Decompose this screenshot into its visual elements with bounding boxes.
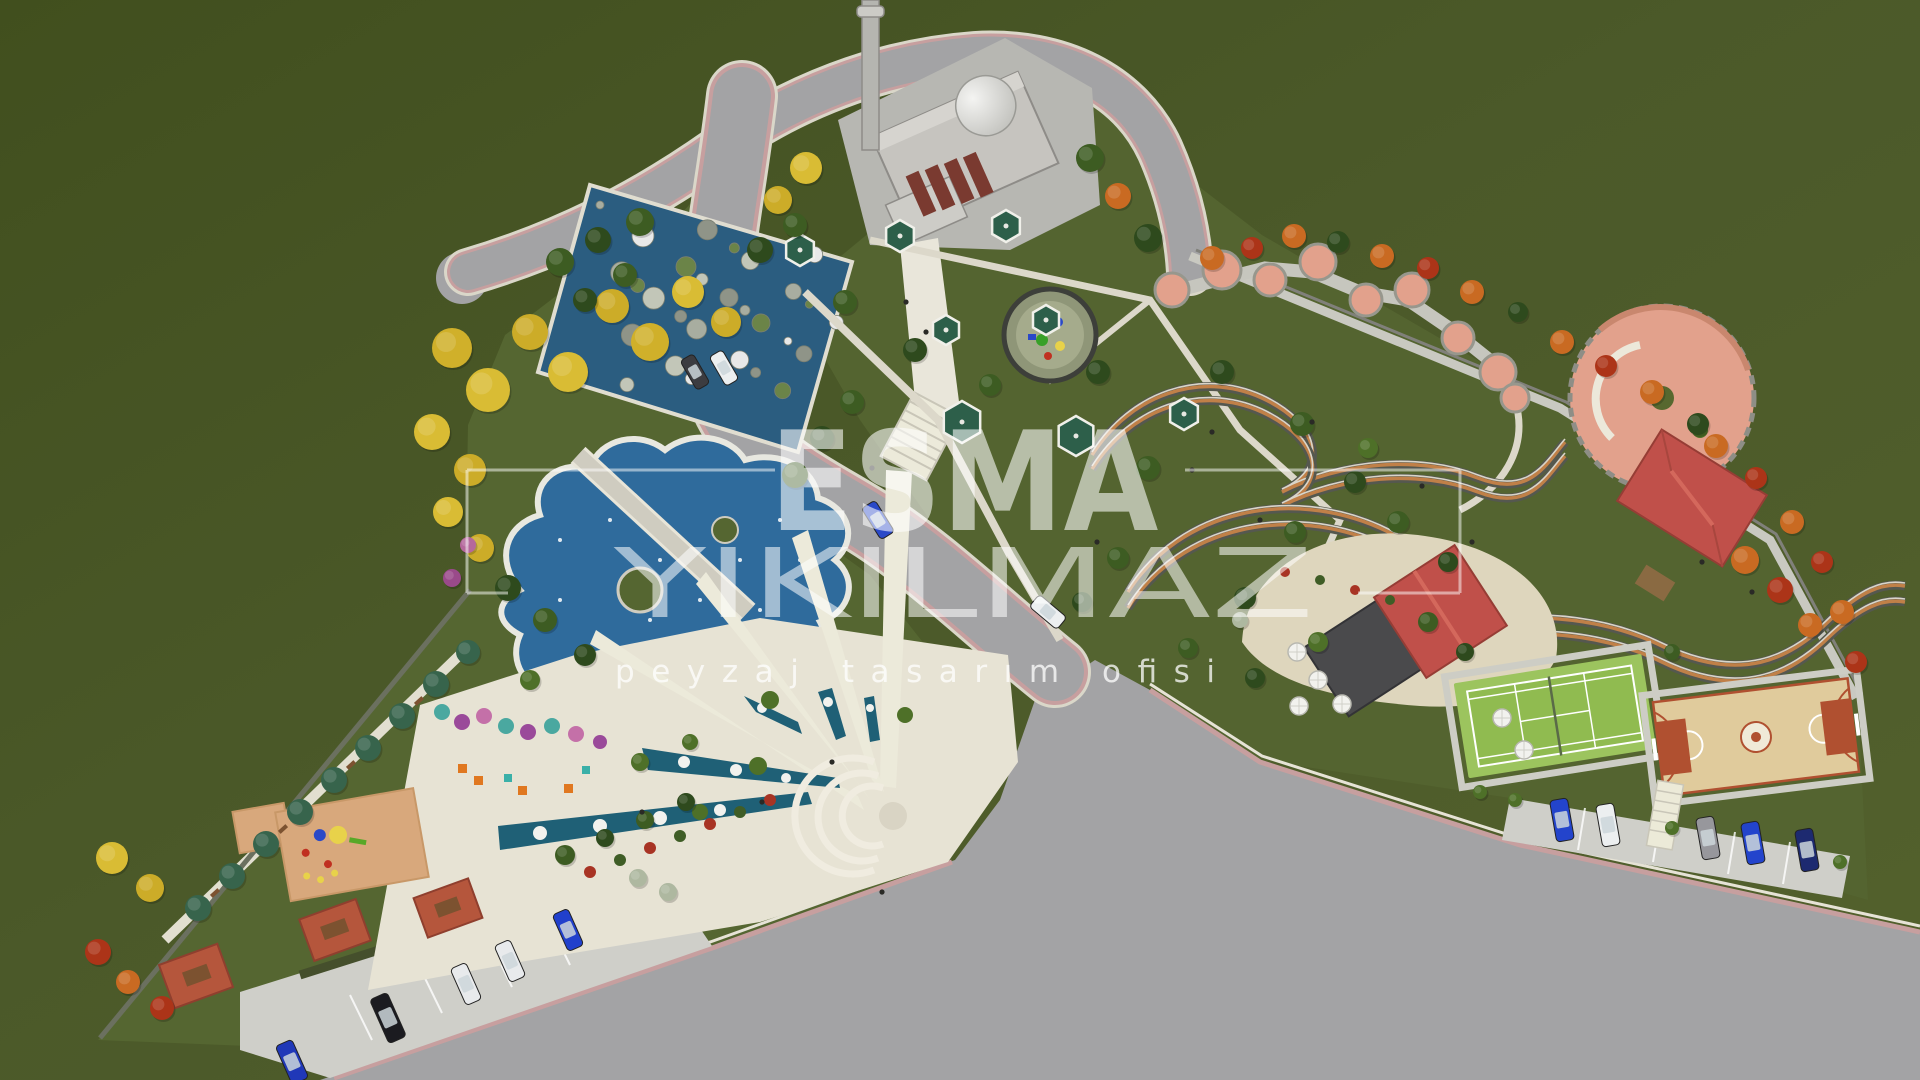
rock bbox=[752, 314, 770, 332]
tree-highlight bbox=[679, 795, 688, 804]
rock bbox=[751, 368, 761, 378]
tree-highlight bbox=[793, 155, 809, 171]
tree-highlight bbox=[1666, 646, 1674, 654]
gazebo bbox=[1033, 305, 1059, 335]
tree-highlight bbox=[88, 942, 101, 955]
tree-highlight bbox=[1458, 645, 1467, 654]
logo-subtitle: YIKILMAZ bbox=[612, 528, 1314, 640]
tree-highlight bbox=[498, 578, 511, 591]
tree-highlight bbox=[905, 340, 917, 352]
tree-highlight bbox=[522, 672, 532, 682]
tree-highlight bbox=[118, 972, 130, 984]
hedge-bush bbox=[674, 830, 686, 842]
rock bbox=[675, 310, 687, 322]
tree-highlight bbox=[1813, 553, 1824, 564]
rock bbox=[731, 351, 749, 369]
tree-highlight bbox=[1088, 362, 1100, 374]
tree-highlight bbox=[99, 845, 115, 861]
rock bbox=[785, 284, 801, 300]
tree-highlight bbox=[1474, 786, 1481, 793]
gazebo-finial bbox=[798, 248, 803, 253]
tree-highlight bbox=[1137, 227, 1151, 241]
gazebo-finial bbox=[1004, 224, 1009, 229]
tree-highlight bbox=[598, 292, 615, 309]
tree-highlight bbox=[418, 418, 436, 436]
person bbox=[1749, 589, 1754, 594]
tree-highlight bbox=[767, 189, 781, 203]
umbrella bbox=[1288, 643, 1306, 661]
umbrella bbox=[1309, 671, 1327, 689]
person bbox=[639, 809, 644, 814]
tree-highlight bbox=[290, 802, 303, 815]
tree-highlight bbox=[1108, 186, 1121, 199]
umbrella bbox=[1515, 741, 1533, 759]
tree-highlight bbox=[1800, 615, 1812, 627]
tree-highlight bbox=[1420, 614, 1430, 624]
rock bbox=[620, 378, 634, 392]
car-roof bbox=[1745, 834, 1761, 852]
tree-highlight bbox=[675, 279, 691, 295]
person bbox=[1419, 483, 1424, 488]
car-roof bbox=[1700, 829, 1716, 847]
tree-highlight bbox=[1360, 440, 1370, 450]
tree-highlight bbox=[557, 847, 567, 857]
tree-highlight bbox=[436, 332, 456, 352]
tree-highlight bbox=[576, 646, 587, 657]
tree-highlight bbox=[629, 211, 643, 225]
tree-highlight bbox=[1389, 513, 1400, 524]
kids-play-circle bbox=[1004, 289, 1096, 381]
tree-highlight bbox=[1747, 469, 1758, 480]
hedge-bush bbox=[1315, 575, 1325, 585]
tree-highlight bbox=[1180, 640, 1190, 650]
tree-highlight bbox=[981, 376, 992, 387]
tree-highlight bbox=[1734, 549, 1748, 563]
rock bbox=[775, 383, 791, 399]
water-speck bbox=[558, 598, 562, 602]
tree-highlight bbox=[1509, 794, 1516, 801]
tree-highlight bbox=[1597, 357, 1608, 368]
person bbox=[1309, 419, 1314, 424]
tree-highlight bbox=[1247, 670, 1257, 680]
rock bbox=[720, 289, 738, 307]
tree-highlight bbox=[835, 292, 847, 304]
tree-highlight bbox=[615, 265, 627, 277]
car-roof bbox=[1600, 816, 1616, 834]
tree-highlight bbox=[324, 770, 337, 783]
tree-highlight bbox=[1666, 822, 1673, 829]
umbrella bbox=[1290, 697, 1308, 715]
rock bbox=[729, 243, 739, 253]
tree-highlight bbox=[598, 831, 607, 840]
tree-highlight bbox=[1202, 248, 1214, 260]
tree-highlight bbox=[1706, 436, 1718, 448]
tree-highlight bbox=[575, 290, 587, 302]
tree-highlight bbox=[1832, 602, 1844, 614]
tree-highlight bbox=[1552, 332, 1564, 344]
tree-highlight bbox=[635, 327, 654, 346]
tree-highlight bbox=[549, 251, 563, 265]
gazebo bbox=[886, 220, 914, 252]
umbrella bbox=[1493, 709, 1511, 727]
gazebo-finial bbox=[944, 328, 949, 333]
person bbox=[903, 299, 908, 304]
hedge-bush bbox=[584, 866, 596, 878]
tree-highlight bbox=[1284, 226, 1296, 238]
tree-highlight bbox=[552, 356, 572, 376]
tree-highlight bbox=[1079, 147, 1093, 161]
tree-highlight bbox=[1292, 414, 1304, 426]
hedge-bush bbox=[734, 806, 746, 818]
tree-highlight bbox=[631, 871, 640, 880]
hedge-bush bbox=[614, 854, 626, 866]
person bbox=[1469, 539, 1474, 544]
tree-highlight bbox=[1770, 580, 1783, 593]
rock bbox=[687, 319, 707, 339]
hedge-bush bbox=[644, 842, 656, 854]
tree-highlight bbox=[1372, 246, 1384, 258]
tree-highlight bbox=[714, 310, 729, 325]
tree-highlight bbox=[1642, 382, 1654, 394]
rock bbox=[784, 337, 792, 345]
tree-highlight bbox=[222, 866, 235, 879]
gazebo bbox=[992, 210, 1020, 242]
rock bbox=[676, 257, 696, 277]
rock bbox=[740, 305, 750, 315]
tree-highlight bbox=[470, 372, 492, 394]
person bbox=[923, 329, 928, 334]
gazebo bbox=[786, 234, 814, 266]
tree-highlight bbox=[256, 834, 269, 847]
tree-highlight bbox=[1462, 282, 1474, 294]
landscape-render: ESMA YIKILMAZ peyzaj tasarım ofisi bbox=[0, 0, 1920, 1080]
tree-highlight bbox=[1510, 304, 1520, 314]
tree-highlight bbox=[445, 571, 454, 580]
tree-highlight bbox=[516, 318, 534, 336]
car-roof bbox=[1554, 811, 1570, 829]
tree-highlight bbox=[188, 898, 201, 911]
tree-highlight bbox=[1834, 856, 1841, 863]
water-speck bbox=[608, 518, 612, 522]
tree-highlight bbox=[1440, 554, 1450, 564]
tree-highlight bbox=[1346, 473, 1357, 484]
tree-highlight bbox=[588, 230, 601, 243]
person bbox=[1257, 517, 1262, 522]
gazebo-finial bbox=[1044, 318, 1049, 323]
tree-highlight bbox=[139, 877, 153, 891]
tree-highlight bbox=[1689, 415, 1700, 426]
person bbox=[1699, 559, 1704, 564]
water-speck bbox=[558, 538, 562, 542]
tree-highlight bbox=[1243, 239, 1254, 250]
tree-highlight bbox=[1212, 362, 1224, 374]
rock bbox=[596, 201, 604, 209]
tree-highlight bbox=[633, 755, 642, 764]
tree-highlight bbox=[1847, 653, 1858, 664]
tree-highlight bbox=[426, 674, 439, 687]
person bbox=[829, 759, 834, 764]
tree-highlight bbox=[436, 500, 451, 515]
tree-highlight bbox=[684, 736, 692, 744]
person bbox=[759, 799, 764, 804]
tree-highlight bbox=[458, 642, 470, 654]
gazebo-finial bbox=[1182, 412, 1187, 417]
tree-highlight bbox=[750, 240, 763, 253]
tree-highlight bbox=[535, 610, 547, 622]
tree-highlight bbox=[785, 215, 797, 227]
gazebo bbox=[933, 315, 959, 345]
tree-highlight bbox=[392, 706, 405, 719]
tree-highlight bbox=[1782, 512, 1794, 524]
rock bbox=[697, 220, 717, 240]
rock bbox=[643, 287, 665, 309]
gazebo bbox=[1170, 398, 1198, 430]
hedge-bush bbox=[764, 794, 776, 806]
tree-highlight bbox=[661, 885, 670, 894]
hedge-bush bbox=[1385, 595, 1395, 605]
tree-highlight bbox=[1329, 233, 1340, 244]
gazebo-finial bbox=[898, 234, 903, 239]
person bbox=[1209, 429, 1214, 434]
tree-highlight bbox=[358, 738, 371, 751]
umbrella bbox=[1333, 695, 1351, 713]
tree-highlight bbox=[152, 998, 164, 1010]
car-roof bbox=[1799, 841, 1815, 859]
hedge-bush bbox=[704, 818, 716, 830]
person bbox=[879, 889, 884, 894]
tree-highlight bbox=[1419, 259, 1430, 270]
rock bbox=[796, 346, 812, 362]
